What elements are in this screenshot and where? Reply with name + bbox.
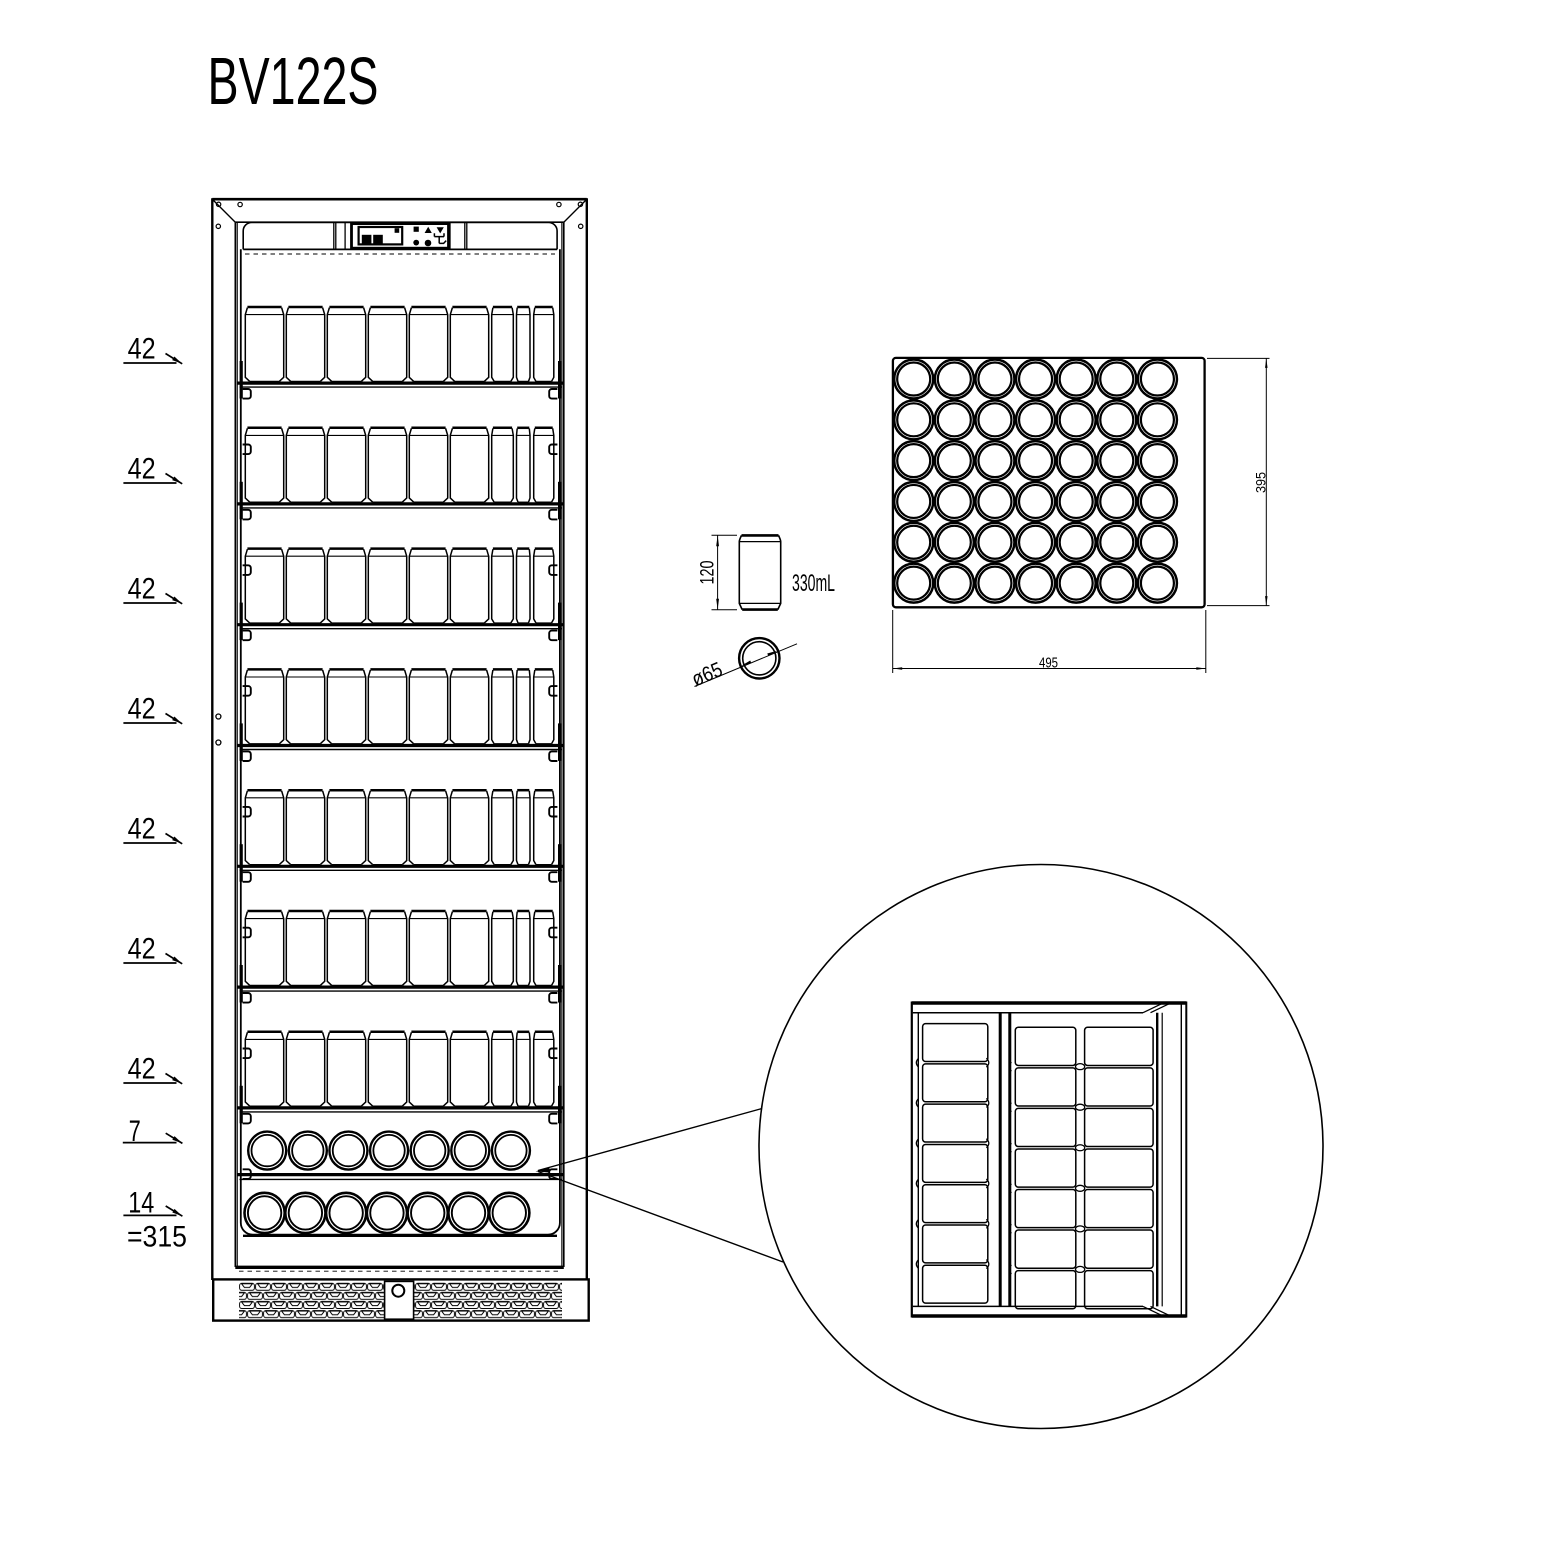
svg-text:=315: =315: [127, 1221, 187, 1254]
svg-text:120: 120: [698, 561, 719, 585]
svg-text:42: 42: [128, 333, 156, 366]
svg-text:42: 42: [128, 1053, 156, 1086]
svg-text:42: 42: [128, 693, 156, 726]
svg-text:330mL: 330mL: [792, 570, 835, 597]
svg-text:495: 495: [1039, 655, 1058, 672]
svg-text:BV122S: BV122S: [208, 44, 379, 119]
svg-text:42: 42: [128, 453, 156, 486]
svg-text:42: 42: [128, 933, 156, 966]
svg-text:395: 395: [1254, 472, 1269, 493]
svg-text:42: 42: [128, 573, 156, 606]
svg-text:42: 42: [128, 813, 156, 846]
